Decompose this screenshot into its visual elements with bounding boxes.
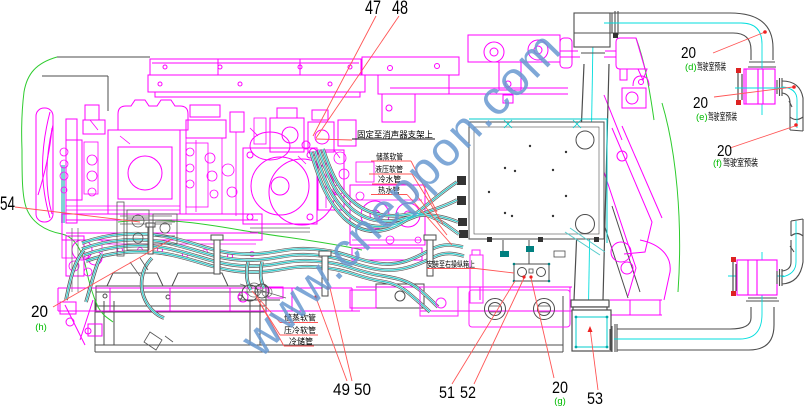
- svg-text:(g): (g): [554, 396, 566, 407]
- svg-text:53: 53: [587, 389, 603, 407]
- svg-text:20: 20: [552, 378, 568, 397]
- svg-text:48: 48: [392, 0, 408, 19]
- svg-text:驾驶室预装: 驾驶室预装: [723, 157, 758, 169]
- svg-text:安装至右操纵箱上: 安装至右操纵箱上: [427, 259, 475, 269]
- svg-text:51: 51: [439, 383, 455, 402]
- svg-text:(d): (d): [685, 62, 697, 73]
- svg-text:(e): (e): [696, 112, 708, 123]
- svg-text:54: 54: [0, 194, 15, 215]
- svg-text:驾驶室预装: 驾驶室预装: [708, 111, 737, 123]
- svg-text:47: 47: [365, 0, 381, 19]
- svg-text:49: 49: [333, 380, 350, 399]
- svg-text:20: 20: [681, 45, 696, 62]
- svg-text:(h): (h): [35, 322, 47, 333]
- svg-text:(f): (f): [713, 158, 722, 169]
- svg-text:52: 52: [460, 383, 476, 402]
- svg-text:20: 20: [693, 95, 708, 112]
- svg-text:20: 20: [31, 302, 48, 321]
- svg-text:驾驶室预装: 驾驶室预装: [697, 61, 726, 73]
- svg-text:50: 50: [354, 380, 371, 399]
